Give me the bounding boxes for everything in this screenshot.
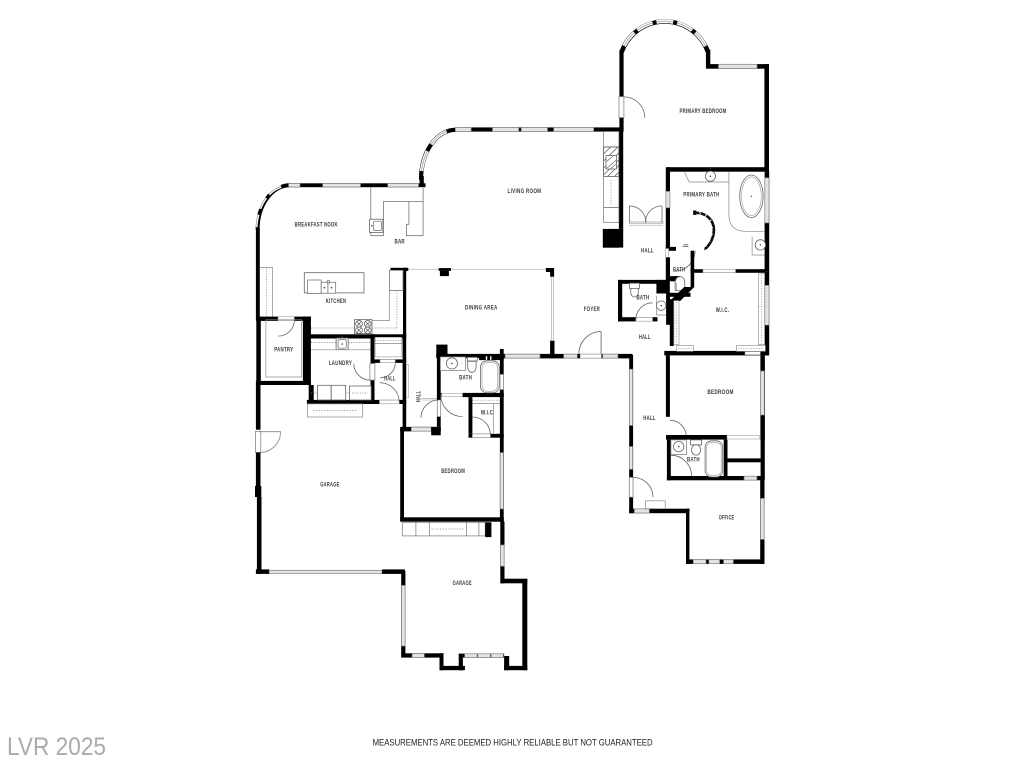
svg-text:BATH: BATH <box>636 295 649 302</box>
svg-text:HALL: HALL <box>384 375 395 382</box>
svg-text:MEASUREMENTS ARE DEEMED HIGHLY: MEASUREMENTS ARE DEEMED HIGHLY RELIABLE … <box>373 736 653 747</box>
svg-text:BATH: BATH <box>673 266 686 273</box>
svg-text:GARAGE: GARAGE <box>320 482 339 489</box>
svg-text:FOYER: FOYER <box>584 306 600 313</box>
svg-text:PANTRY: PANTRY <box>274 347 294 354</box>
svg-text:DINING AREA: DINING AREA <box>465 305 498 312</box>
svg-text:PRIMARY BEDROOM: PRIMARY BEDROOM <box>680 108 727 115</box>
svg-text:LAUNDRY: LAUNDRY <box>329 360 353 367</box>
svg-text:BATH: BATH <box>459 375 472 382</box>
svg-text:KITCHEN: KITCHEN <box>326 298 347 305</box>
svg-text:LIVING ROOM: LIVING ROOM <box>508 188 542 195</box>
svg-text:PRIMARY BATH: PRIMARY BATH <box>683 192 719 199</box>
svg-text:LVR 2025: LVR 2025 <box>7 733 106 761</box>
svg-text:BAR: BAR <box>394 238 405 245</box>
svg-text:BEDROOM: BEDROOM <box>707 389 733 396</box>
svg-text:OFFICE: OFFICE <box>719 515 735 522</box>
svg-text:BREAKFAST NOOK: BREAKFAST NOOK <box>295 221 338 228</box>
svg-text:GARAGE: GARAGE <box>453 580 472 587</box>
svg-text:W.I.C.: W.I.C. <box>716 307 730 314</box>
svg-text:HALL: HALL <box>639 334 651 341</box>
svg-text:HALL: HALL <box>643 415 655 422</box>
svg-text:W.I.C: W.I.C <box>481 410 493 417</box>
svg-text:HALL: HALL <box>416 391 423 403</box>
svg-text:BATH: BATH <box>687 457 700 464</box>
svg-text:HALL: HALL <box>641 247 654 254</box>
svg-text:BEDROOM: BEDROOM <box>441 468 465 475</box>
